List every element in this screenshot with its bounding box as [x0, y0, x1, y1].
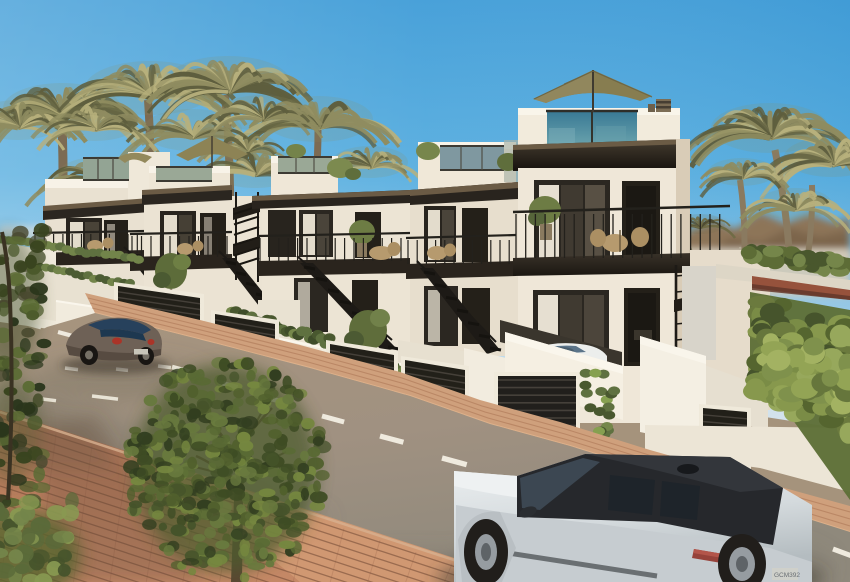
- svg-text:GCM392: GCM392: [774, 572, 800, 579]
